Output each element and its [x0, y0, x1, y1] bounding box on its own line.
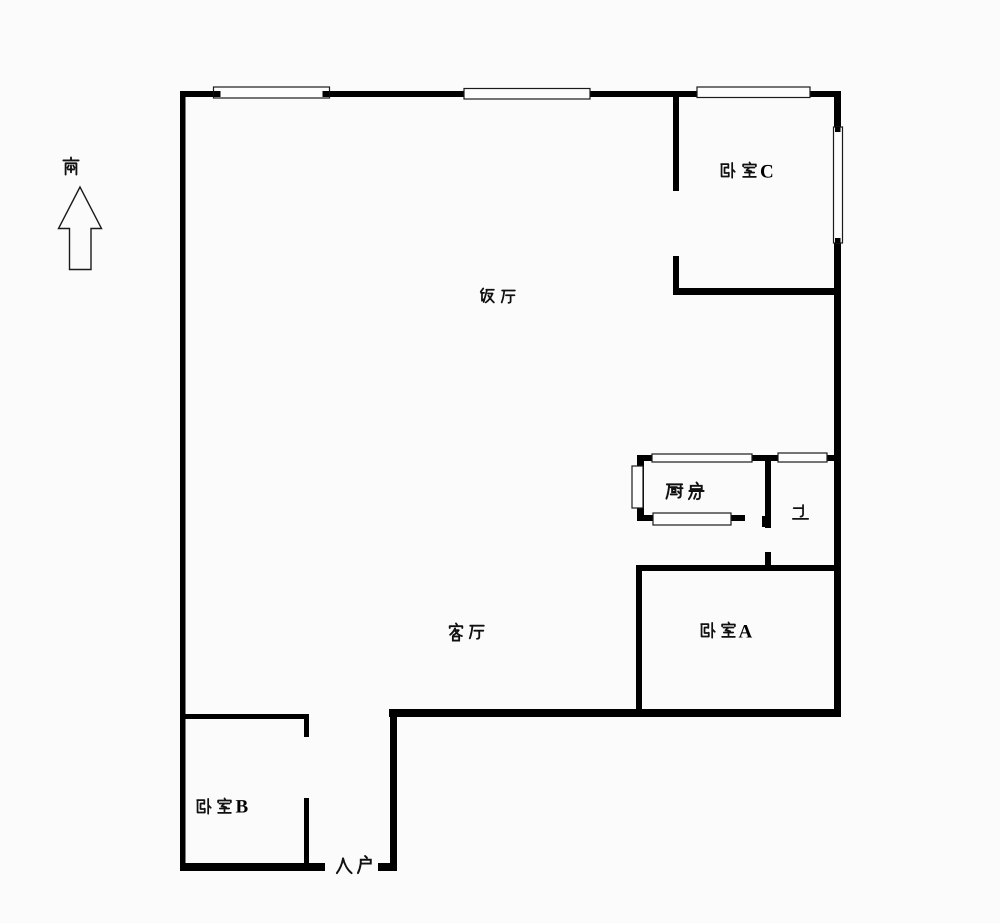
svg-text:B: B	[235, 796, 248, 817]
svg-text:C: C	[760, 162, 774, 183]
svg-text:A: A	[738, 621, 752, 642]
